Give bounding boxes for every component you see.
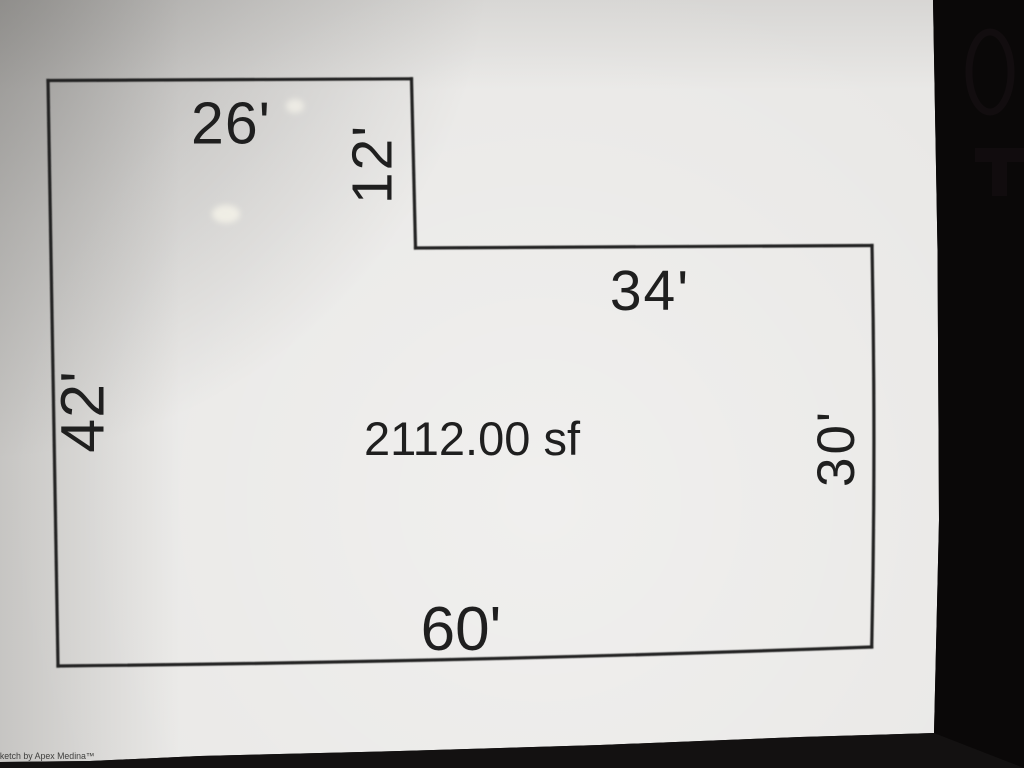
svg-text:26': 26' [191, 91, 271, 157]
svg-text:34': 34' [610, 259, 690, 323]
svg-text:42': 42' [49, 370, 117, 453]
svg-text:2112.00 sf: 2112.00 sf [364, 412, 581, 465]
svg-text:12': 12' [341, 124, 405, 204]
svg-text:60': 60' [421, 595, 502, 664]
svg-text:Sketch by Apex Medina™: Sketch by Apex Medina™ [0, 751, 95, 761]
svg-text:30': 30' [807, 409, 866, 487]
